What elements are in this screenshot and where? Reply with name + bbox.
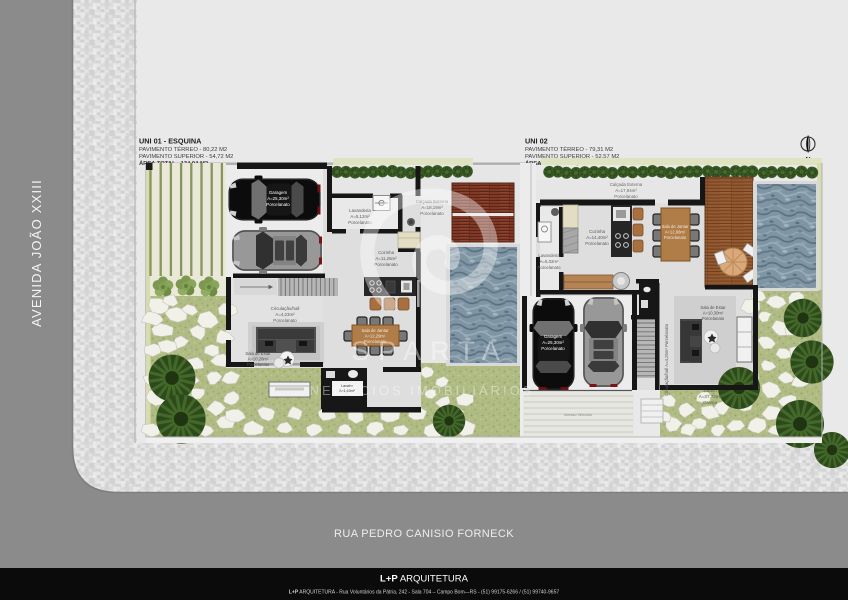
- svg-text:Circulação/hall A=4,25m² Porce: Circulação/hall A=4,25m² Porcelanato: [664, 323, 669, 396]
- svg-text:A=25,30m²: A=25,30m²: [267, 196, 289, 201]
- svg-text:Porcelanato: Porcelanato: [247, 362, 270, 367]
- svg-text:AVENIDA JOÃO XXIII: AVENIDA JOÃO XXIII: [29, 179, 44, 327]
- svg-text:Porcelanato: Porcelanato: [420, 211, 444, 216]
- svg-text:L+P ARQUITETURA - Rua Voluntár: L+P ARQUITETURA - Rua Voluntários da Pát…: [289, 590, 560, 596]
- svg-text:A=17,94m²: A=17,94m²: [615, 188, 637, 193]
- svg-text:Porcelanato: Porcelanato: [374, 262, 398, 267]
- svg-text:Porcelanato: Porcelanato: [614, 194, 638, 199]
- svg-text:A=18,19m²: A=18,19m²: [421, 205, 443, 210]
- svg-text:A=5,12m²: A=5,12m²: [350, 214, 370, 219]
- svg-text:PAVIMENTO SUPERIOR - 54,72 M2: PAVIMENTO SUPERIOR - 54,72 M2: [139, 154, 233, 160]
- svg-text:L+P ARQUITETURA: L+P ARQUITETURA: [380, 574, 469, 585]
- svg-text:Cozinha: Cozinha: [378, 250, 395, 255]
- svg-text:Lavanderia: Lavanderia: [538, 253, 560, 258]
- svg-text:Sala de Estar: Sala de Estar: [245, 351, 271, 356]
- svg-text:Porcelanato: Porcelanato: [664, 235, 687, 240]
- svg-text:A=14,40m²: A=14,40m²: [586, 235, 608, 240]
- svg-text:A=4,23m²: A=4,23m²: [275, 312, 295, 317]
- svg-text:Porcelanato: Porcelanato: [702, 316, 725, 321]
- svg-text:Acesso Veículos: Acesso Veículos: [564, 413, 592, 417]
- svg-text:Calçada Externa: Calçada Externa: [610, 182, 643, 187]
- svg-text:Porcelanato: Porcelanato: [266, 202, 290, 207]
- svg-text:PAVIMENTO TÉRREO - 80,22 M2: PAVIMENTO TÉRREO - 80,22 M2: [139, 146, 227, 153]
- svg-text:A=10,30m²: A=10,30m²: [703, 311, 724, 316]
- svg-text:UNI 01 - ESQUINA: UNI 01 - ESQUINA: [139, 137, 202, 146]
- svg-text:A=12,96m²: A=12,96m²: [665, 230, 686, 235]
- svg-text:Lavanderia: Lavanderia: [349, 208, 371, 213]
- svg-text:A=25,30m²: A=25,30m²: [542, 340, 564, 345]
- svg-text:A=11,25m²: A=11,25m²: [375, 256, 397, 261]
- svg-text:Porcelanato: Porcelanato: [538, 265, 562, 270]
- svg-text:Porcelanato: Porcelanato: [585, 241, 609, 246]
- svg-text:A=37,72m²: A=37,72m²: [699, 394, 722, 399]
- svg-text:PAVIMENTO TÉRREO - 79,31 M2: PAVIMENTO TÉRREO - 79,31 M2: [525, 146, 613, 153]
- svg-text:Garagem: Garagem: [544, 334, 563, 339]
- svg-text:Sala de Jantar: Sala de Jantar: [361, 328, 389, 333]
- svg-text:Sala de Estar: Sala de Estar: [700, 305, 726, 310]
- svg-text:Circulação/hall: Circulação/hall: [271, 306, 300, 311]
- svg-text:NEGÓCIOS IMOBILIÁRIOS: NEGÓCIOS IMOBILIÁRIOS: [310, 383, 535, 398]
- svg-text:Grama: Grama: [703, 400, 717, 405]
- svg-text:Sala de Jantar: Sala de Jantar: [661, 224, 689, 229]
- svg-text:A=10,26m²: A=10,26m²: [248, 357, 269, 362]
- svg-text:Cozinha: Cozinha: [589, 229, 606, 234]
- svg-text:Porcelanato: Porcelanato: [273, 318, 297, 323]
- svg-text:Porcelanato: Porcelanato: [541, 346, 565, 351]
- svg-text:SPARTA: SPARTA: [351, 336, 509, 366]
- svg-text:UNI 02: UNI 02: [525, 137, 548, 146]
- svg-text:RUA PEDRO CANISIO FORNECK: RUA PEDRO CANISIO FORNECK: [334, 528, 514, 540]
- svg-text:Garagem: Garagem: [269, 190, 288, 195]
- svg-text:A=5,02m²: A=5,02m²: [540, 259, 559, 264]
